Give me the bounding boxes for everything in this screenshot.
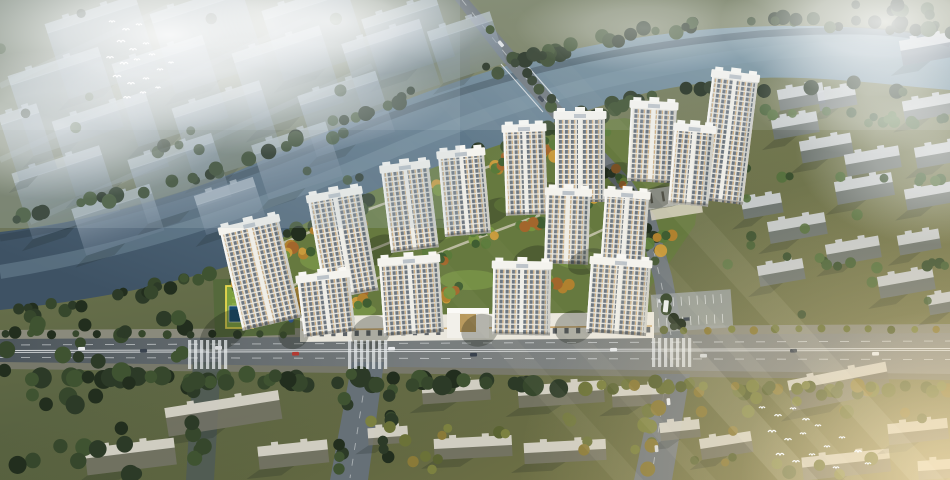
- rendered-scene: [0, 0, 950, 480]
- car: [140, 349, 147, 353]
- car: [470, 353, 477, 357]
- car: [78, 347, 85, 351]
- cloud: [55, 35, 455, 155]
- aerial-render-image: [0, 0, 950, 480]
- car: [388, 347, 395, 351]
- car: [292, 352, 299, 356]
- car: [215, 346, 222, 350]
